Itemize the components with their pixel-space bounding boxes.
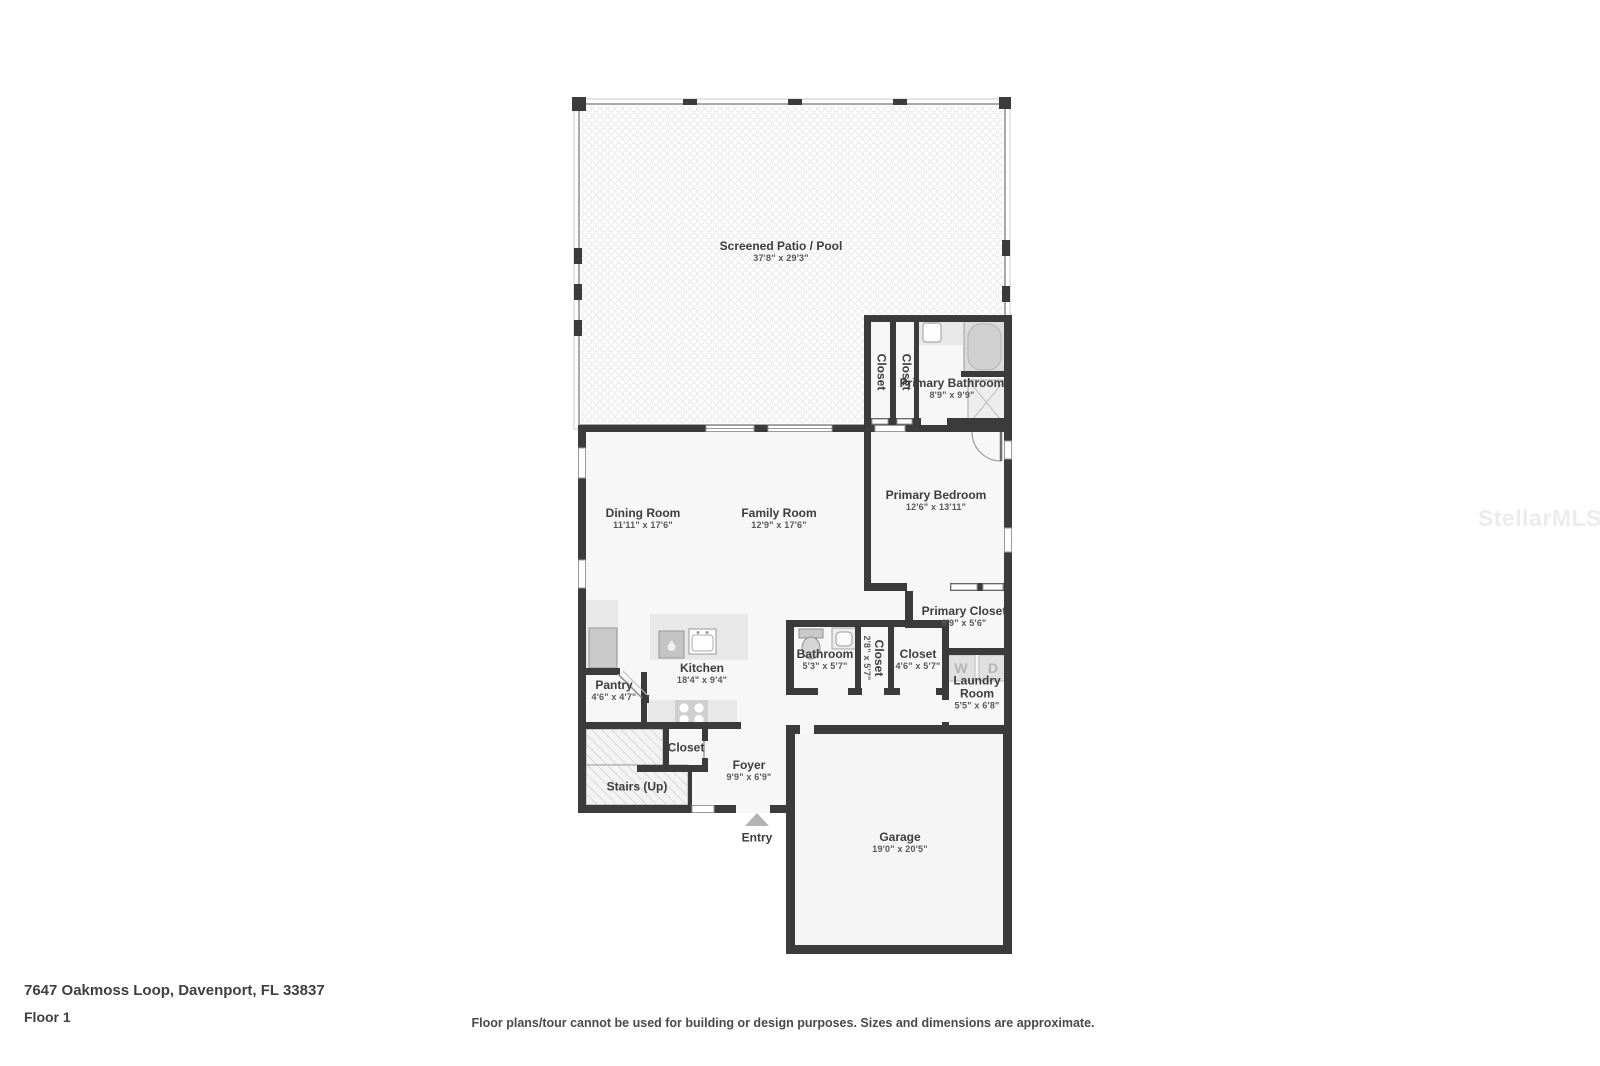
dishwasher-icon: [659, 631, 684, 658]
room-label-primary-bathroom: Primary Bathroom 8'9" x 9'9": [900, 377, 1005, 401]
room-label-garage: Garage 19'0" x 20'5": [872, 831, 927, 855]
room-label-entry: Entry: [742, 832, 773, 845]
floor-plan-drawing: W D: [0, 0, 1600, 1066]
kitchen-sink-icon: [689, 629, 716, 654]
room-label-hall-closet: Closet 4'6" x 5'7": [895, 648, 940, 672]
room-label-foyer: Foyer 9'9" x 6'9": [726, 759, 771, 783]
room-label-patio-closet-2: Closet: [900, 354, 913, 391]
hall-sink-icon: [832, 628, 856, 649]
room-label-patio: Screened Patio / Pool 37'8" x 29'3": [720, 240, 843, 264]
disclaimer-text: Floor plans/tour cannot be used for buil…: [471, 1016, 1094, 1030]
room-label-bathroom: Bathroom 5'3" x 5'7": [797, 648, 854, 672]
room-label-kitchen: Kitchen 18'4" x 9'4": [677, 662, 727, 686]
room-label-hall-closet-small: Closet 2'8" x 5'7": [861, 635, 885, 680]
room-label-foyer-closet: Closet: [668, 742, 705, 755]
room-label-family-room: Family Room 12'9" x 17'6": [741, 507, 816, 531]
floor-plan-page: W D: [0, 0, 1600, 1066]
room-label-primary-closet: Primary Closet 8'9" x 5'6": [922, 605, 1007, 629]
room-label-pantry: Pantry 4'6" x 4'7": [591, 679, 636, 703]
room-label-dining-room: Dining Room 11'11" x 17'6": [606, 507, 681, 531]
fridge-icon: [586, 600, 618, 668]
stellar-mls-watermark: StellarMLS: [1478, 505, 1600, 532]
room-label-laundry-room: Laundry Room 5'5" x 6'8": [945, 675, 1009, 712]
entry-arrow-icon: [745, 813, 769, 826]
property-address: 7647 Oakmoss Loop, Davenport, FL 33837: [24, 982, 325, 999]
bathtub-icon: [964, 320, 1005, 374]
room-label-stairs: Stairs (Up): [607, 781, 668, 794]
room-label-patio-closet-1: Closet: [875, 354, 888, 391]
primary-bath-vanity: [915, 319, 963, 345]
room-label-primary-bedroom: Primary Bedroom 12'6" x 13'11": [886, 489, 987, 513]
floor-label: Floor 1: [24, 1009, 71, 1025]
kitchen-counter-top: [650, 614, 748, 660]
